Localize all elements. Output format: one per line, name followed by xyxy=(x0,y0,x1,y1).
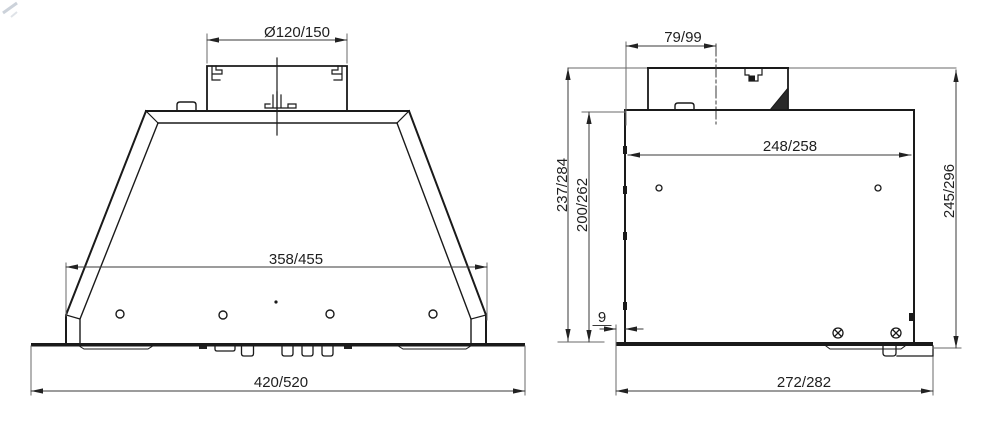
screw-icon xyxy=(891,328,901,338)
edge-slot-ticks xyxy=(623,146,913,321)
side-view: 79/99 248/258 237/284 200/262 xyxy=(554,29,961,395)
collar-clip-left-icon xyxy=(212,66,222,80)
dim-top-width: 248/258 xyxy=(628,138,911,158)
hole-icon xyxy=(116,310,124,318)
dim-body-height: 200/262 xyxy=(574,112,625,342)
hole-icon xyxy=(326,310,334,318)
hole-icon xyxy=(656,185,662,191)
hole-icon xyxy=(875,185,881,191)
dim-flange-offset: 9 xyxy=(593,309,643,395)
bottom-plate-front xyxy=(31,343,525,347)
screw-icon xyxy=(833,328,843,338)
control-buttons xyxy=(199,347,352,357)
dim-label-overall-width: 420/520 xyxy=(254,374,308,391)
drawing-canvas: Ø120/150 358/455 420/520 xyxy=(0,0,1000,429)
duct-collar-side xyxy=(648,44,788,124)
gusset-icon xyxy=(770,88,788,110)
plate-recesses-front xyxy=(80,347,470,350)
button-icon xyxy=(302,347,313,357)
dim-right-height: 245/296 xyxy=(933,70,961,348)
button-icon xyxy=(322,347,333,357)
dim-label-flange-offset: 9 xyxy=(598,309,606,326)
collar-clip-right-icon xyxy=(332,66,342,80)
dim-label-duct-offset: 79/99 xyxy=(664,29,702,46)
dim-label-hood-width: 358/455 xyxy=(269,251,323,268)
dim-duct-diameter: Ø120/150 xyxy=(207,24,347,63)
top-tab-front xyxy=(177,102,196,111)
collar-clip-icon xyxy=(750,76,756,82)
button-icon xyxy=(242,347,254,357)
front-holes xyxy=(116,300,437,319)
button-icon xyxy=(282,347,293,357)
dim-hood-width: 358/455 xyxy=(66,251,487,320)
dim-label-body-height: 200/262 xyxy=(574,178,591,232)
collar-bracket-icon xyxy=(265,92,296,108)
plate-recess-side xyxy=(826,346,905,349)
switch-bump xyxy=(215,347,235,352)
nub-icon xyxy=(199,347,207,350)
plate-tab-icon xyxy=(883,346,896,356)
nub-icon xyxy=(344,347,352,350)
dim-base-width: 272/282 xyxy=(616,357,933,395)
dim-overall-height: 237/284 xyxy=(554,68,571,341)
center-dot-icon xyxy=(274,300,277,303)
dim-label-base-width: 272/282 xyxy=(777,374,831,391)
hole-icon xyxy=(219,311,227,319)
dim-label-overall-height: 237/284 xyxy=(554,158,571,212)
hood-dimension-drawing: Ø120/150 358/455 420/520 xyxy=(0,0,1000,429)
dim-label-right-height: 245/296 xyxy=(941,164,958,218)
corner-artifact xyxy=(3,3,17,17)
dim-label-duct-diameter: Ø120/150 xyxy=(264,24,330,41)
bottom-plate-side xyxy=(616,342,933,356)
front-view: Ø120/150 358/455 420/520 xyxy=(31,24,525,395)
hole-icon xyxy=(429,310,437,318)
hood-body-front xyxy=(66,102,486,343)
dim-overall-width: 420/520 xyxy=(31,346,525,395)
top-tab-side xyxy=(675,103,694,110)
dim-label-top-width: 248/258 xyxy=(763,138,817,155)
